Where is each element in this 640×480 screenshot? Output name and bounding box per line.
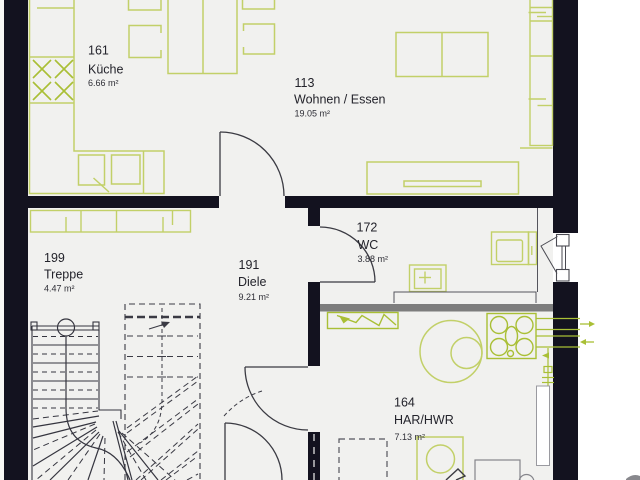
svg-text:9.21 m²: 9.21 m²	[239, 292, 270, 302]
svg-text:164: 164	[394, 396, 415, 410]
svg-text:161: 161	[88, 44, 109, 58]
svg-text:Diele: Diele	[238, 275, 267, 289]
svg-text:113: 113	[295, 76, 315, 90]
svg-text:199: 199	[44, 251, 65, 265]
svg-text:19.05 m²: 19.05 m²	[295, 109, 331, 119]
svg-text:6.66 m²: 6.66 m²	[88, 78, 119, 88]
svg-text:Treppe: Treppe	[44, 268, 83, 282]
svg-text:WC: WC	[358, 238, 379, 252]
svg-text:7.13 m²: 7.13 m²	[395, 432, 426, 442]
svg-text:Wohnen / Essen: Wohnen / Essen	[294, 93, 386, 107]
svg-text:172: 172	[357, 221, 378, 235]
svg-text:191: 191	[239, 258, 260, 272]
svg-text:Küche: Küche	[88, 63, 123, 77]
svg-text:HAR/HWR: HAR/HWR	[394, 413, 454, 427]
svg-text:3.88 m²: 3.88 m²	[358, 254, 389, 264]
svg-text:4.47 m²: 4.47 m²	[44, 284, 75, 294]
